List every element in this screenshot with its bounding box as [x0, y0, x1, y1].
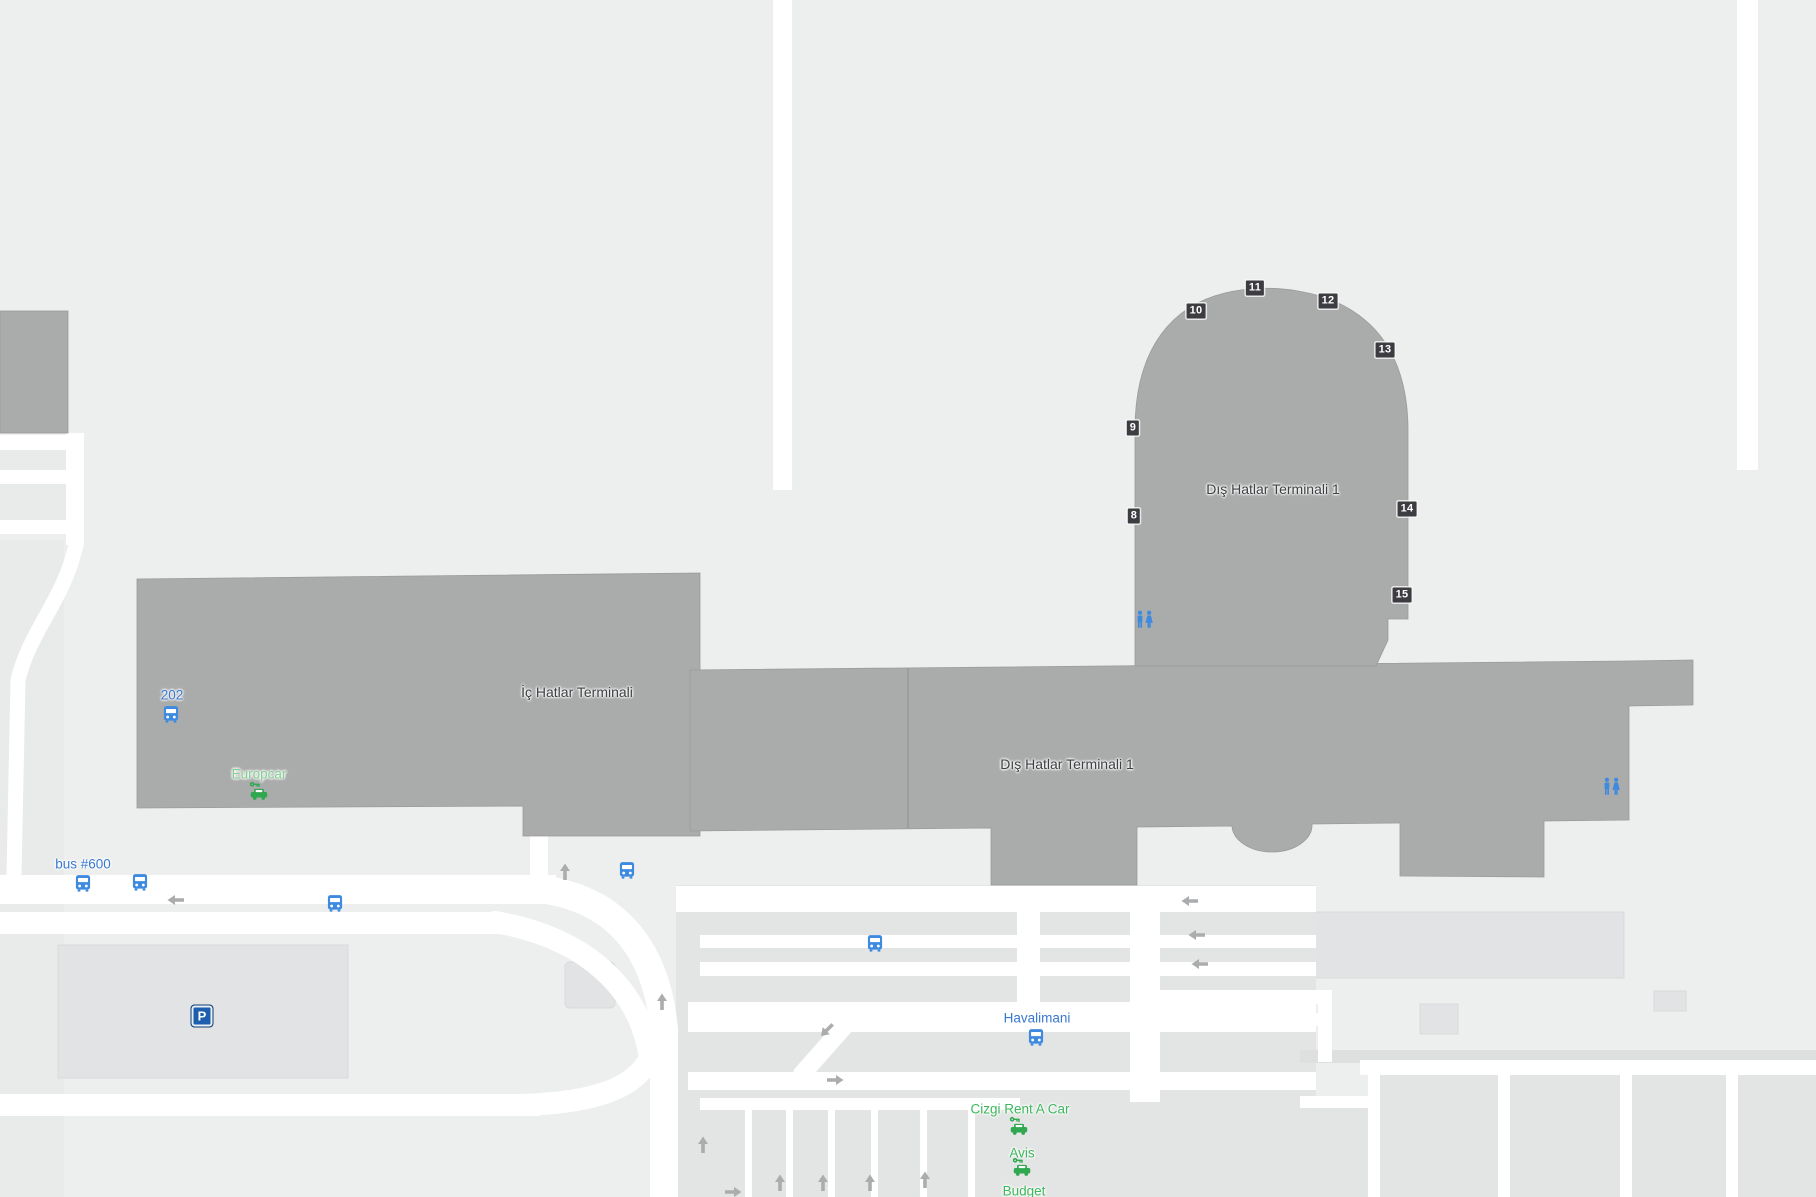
gate-marker-10[interactable]: 10 [1187, 304, 1206, 319]
rental-label-europcar[interactable]: Europcar [232, 767, 287, 782]
bus-stop-label-600[interactable]: bus #600 [55, 857, 111, 872]
ic-hatlar-building [137, 573, 700, 836]
rental-label-budget[interactable]: Budget [1003, 1184, 1046, 1197]
parking-icon[interactable]: P [191, 1005, 214, 1028]
car-rental-icon[interactable] [1008, 1116, 1030, 1138]
terminal-label-dis-hatlar-1-upper[interactable]: Dış Hatlar Terminali 1 [1206, 481, 1340, 497]
terminal-label-ic-hatlar[interactable]: İç Hatlar Terminali [521, 684, 633, 700]
bus-stop-icon[interactable] [1026, 1027, 1046, 1047]
gate-marker-13[interactable]: 13 [1376, 343, 1395, 358]
car-rental-icon[interactable] [248, 781, 270, 803]
gate-marker-12[interactable]: 12 [1319, 294, 1338, 309]
gate-marker-8[interactable]: 8 [1128, 509, 1140, 524]
restroom-icon[interactable] [1134, 610, 1156, 632]
bus-stop-icon[interactable] [617, 860, 637, 880]
outbuilding [0, 311, 68, 433]
airport-map[interactable]: Dış Hatlar Terminali 1 İç Hatlar Termina… [0, 0, 1816, 1197]
restroom-icon[interactable] [1601, 777, 1623, 799]
bus-stop-label-havalimani[interactable]: Havalimani [1004, 1011, 1071, 1026]
dis-hatlar-dome-building [1135, 288, 1408, 666]
gate-marker-9[interactable]: 9 [1127, 421, 1139, 436]
bus-stop-icon[interactable] [73, 873, 93, 893]
gate-marker-15[interactable]: 15 [1393, 588, 1412, 603]
bus-stop-icon[interactable] [865, 933, 885, 953]
gate-marker-14[interactable]: 14 [1398, 502, 1417, 517]
rental-label-cizgi[interactable]: Cizgi Rent A Car [970, 1102, 1069, 1117]
bus-stop-icon[interactable] [161, 704, 181, 724]
gate-marker-11[interactable]: 11 [1246, 281, 1264, 296]
car-rental-icon[interactable] [1011, 1157, 1033, 1179]
terminal-label-dis-hatlar-1-lower[interactable]: Dış Hatlar Terminali 1 [1000, 756, 1134, 772]
bus-stop-icon[interactable] [130, 872, 150, 892]
bus-stop-icon[interactable] [325, 893, 345, 913]
map-canvas [0, 0, 1816, 1197]
bus-stop-label-202[interactable]: 202 [161, 688, 184, 703]
